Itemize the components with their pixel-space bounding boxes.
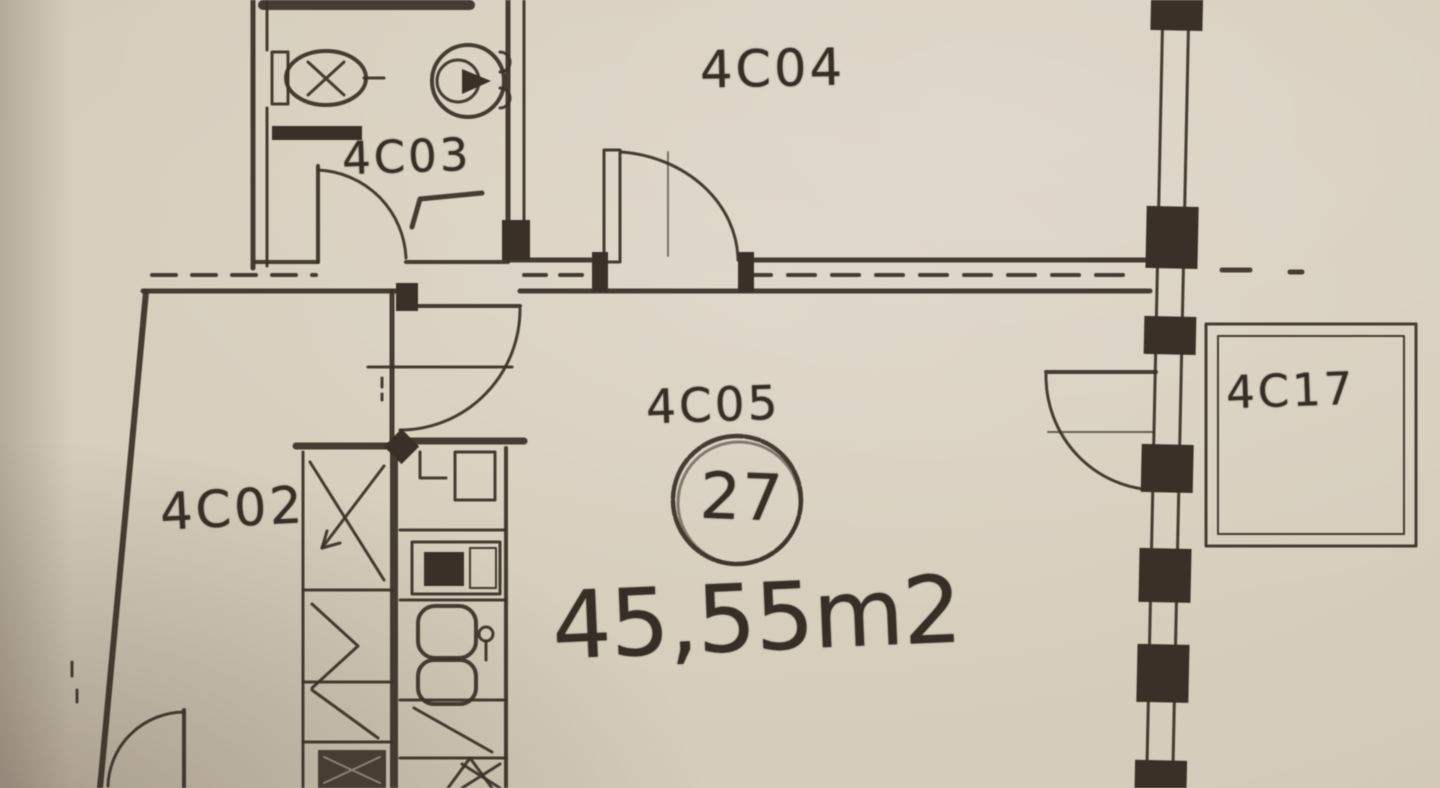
- bathroom-fixtures: [272, 45, 510, 140]
- door-balcony: [1046, 372, 1156, 490]
- stove-icon: [412, 542, 500, 594]
- sink-icon: [272, 51, 384, 105]
- door-room-left: [108, 710, 184, 788]
- window-wall: [1134, 0, 1203, 788]
- room-label-room-left: 4C02: [159, 480, 306, 539]
- room-label-bathroom: 4C03: [341, 132, 472, 181]
- unit-number: 27: [699, 465, 777, 532]
- unit-area: 45,55m2: [550, 563, 963, 673]
- rail-icon: [412, 193, 482, 227]
- toilet-icon: [432, 45, 510, 117]
- floor-plan: 4C03 4C04 4C05 4C02 4C17 27 45,55m2: [0, 0, 1440, 788]
- balcony-outline: [1206, 324, 1416, 546]
- room-label-balcony: 4C17: [1225, 366, 1356, 415]
- room-label-living: 4C05: [645, 380, 781, 432]
- wall-left: [100, 292, 146, 788]
- kitchen-fixtures: [400, 452, 506, 788]
- door-swing-arcs: [108, 150, 1156, 788]
- room-label-room-top: 4C04: [699, 42, 845, 96]
- kitchen-sink-icon: [418, 606, 493, 704]
- door-room-top: [604, 150, 738, 262]
- wardrobe-cross-icon: [303, 462, 392, 788]
